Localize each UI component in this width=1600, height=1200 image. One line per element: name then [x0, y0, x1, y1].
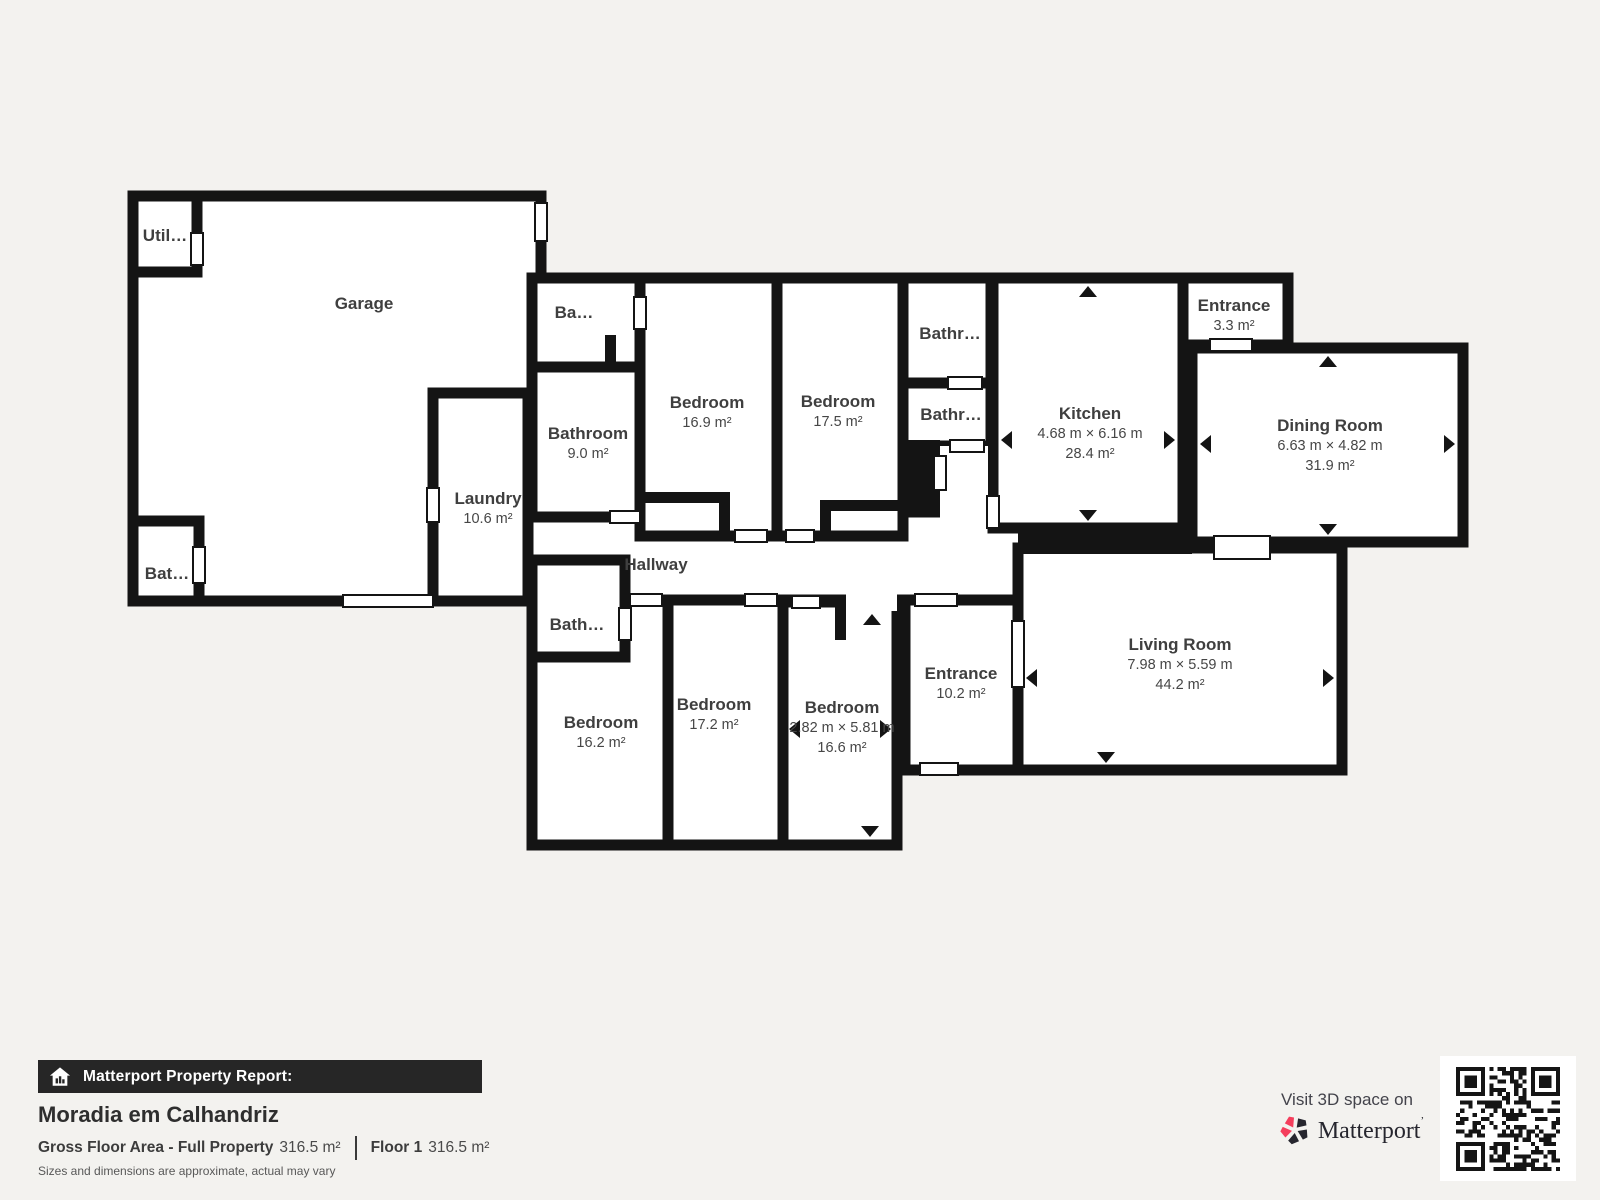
report-bar-label: Matterport Property Report: [83, 1068, 293, 1086]
room-label-bedroom175: Bedroom 17.5 m² [801, 392, 876, 432]
wall-stub [645, 492, 730, 503]
room-label-living: Living Room 7.98 m × 5.59 m 44.2 m² [1127, 635, 1232, 695]
door-opening [630, 594, 662, 606]
room-label-hallway: Hallway [624, 555, 687, 575]
disclaimer-text: Sizes and dimensions are approximate, ac… [38, 1164, 335, 1178]
room-bat-garage-shape [133, 521, 199, 601]
room-label-kitchen: Kitchen 4.68 m × 6.16 m 28.4 m² [1037, 404, 1142, 464]
property-name: Moradia em Calhandriz [38, 1102, 279, 1128]
door-opening [1012, 621, 1024, 687]
door-opening [920, 763, 958, 775]
floorplan-report-page: Garage Util… Bat… Laundry 10.6 m² Ba… Ba… [0, 0, 1600, 1200]
room-label-util: Util… [143, 226, 187, 246]
floor-area-stats: Gross Floor Area - Full Property 316.5 m… [38, 1136, 489, 1160]
door-opening [745, 594, 777, 606]
room-kitchen-shape [993, 278, 1183, 528]
door-opening [610, 511, 640, 523]
room-label-laundry: Laundry 10.6 m² [454, 489, 521, 529]
room-label-bathr-upper: Bathr… [919, 324, 980, 344]
door-opening [343, 595, 433, 607]
gross-floor-area-label: Gross Floor Area - Full Property [38, 1139, 273, 1157]
stats-divider [355, 1136, 357, 1160]
door-opening [915, 594, 957, 606]
door-opening [191, 233, 203, 265]
qr-code [1440, 1056, 1576, 1181]
room-label-bedroom166: Bedroom 2.82 m × 5.81 m 16.6 m² [789, 698, 894, 758]
door-opening [950, 440, 984, 452]
wall-stub [719, 492, 730, 536]
wall-stub [835, 596, 846, 640]
door-opening [1214, 536, 1270, 559]
room-label-bathr-lower: Bathr… [920, 405, 981, 425]
floor1-label: Floor 1 [371, 1139, 423, 1157]
door-opening [735, 530, 767, 542]
room-label-ba-top: Ba… [555, 303, 594, 323]
floor1-value: 316.5 m² [428, 1139, 489, 1157]
passage-opening [846, 591, 897, 611]
room-label-bedroom169: Bedroom 16.9 m² [670, 393, 745, 433]
floorplan-svg [0, 0, 1600, 1200]
door-opening [634, 297, 646, 329]
door-opening [427, 488, 439, 522]
wall-stub [820, 500, 912, 511]
wall-mass [1018, 528, 1192, 554]
room-label-entrance-top: Entrance 3.3 m² [1198, 296, 1271, 336]
room-label-garage: Garage [335, 294, 394, 314]
door-opening [535, 203, 547, 241]
wall-stub [820, 500, 831, 540]
room-label-bath-small: Bath… [550, 615, 605, 635]
report-header-bar: Matterport Property Report: [38, 1060, 482, 1093]
house-bars-icon [49, 1066, 71, 1088]
room-label-bat-garage: Bat… [145, 564, 189, 584]
door-opening [792, 596, 820, 608]
door-opening [1210, 339, 1252, 351]
matterport-pinwheel-icon [1280, 1115, 1310, 1145]
room-label-bedroom172: Bedroom 17.2 m² [677, 695, 752, 735]
door-opening [619, 608, 631, 640]
room-label-entrance-lower: Entrance 10.2 m² [925, 664, 998, 704]
gross-floor-area-value: 316.5 m² [279, 1139, 340, 1157]
door-opening [193, 547, 205, 583]
matterport-brand: Matterport’ [1280, 1115, 1424, 1145]
door-opening [987, 496, 999, 528]
door-opening [934, 456, 946, 490]
matterport-wordmark: Matterport’ [1318, 1115, 1424, 1145]
visit-3d-text: Visit 3D space on [1281, 1090, 1413, 1110]
wall-stub [605, 335, 616, 367]
room-label-bathroom9: Bathroom 9.0 m² [548, 424, 628, 464]
qr-code-pattern [1456, 1067, 1560, 1171]
door-opening [786, 530, 814, 542]
room-label-dining: Dining Room 6.63 m × 4.82 m 31.9 m² [1277, 416, 1383, 476]
passage-opening [940, 446, 988, 518]
room-bath-small-shape [532, 560, 625, 657]
room-label-bedroom162: Bedroom 16.2 m² [564, 713, 639, 753]
door-opening [948, 377, 982, 389]
